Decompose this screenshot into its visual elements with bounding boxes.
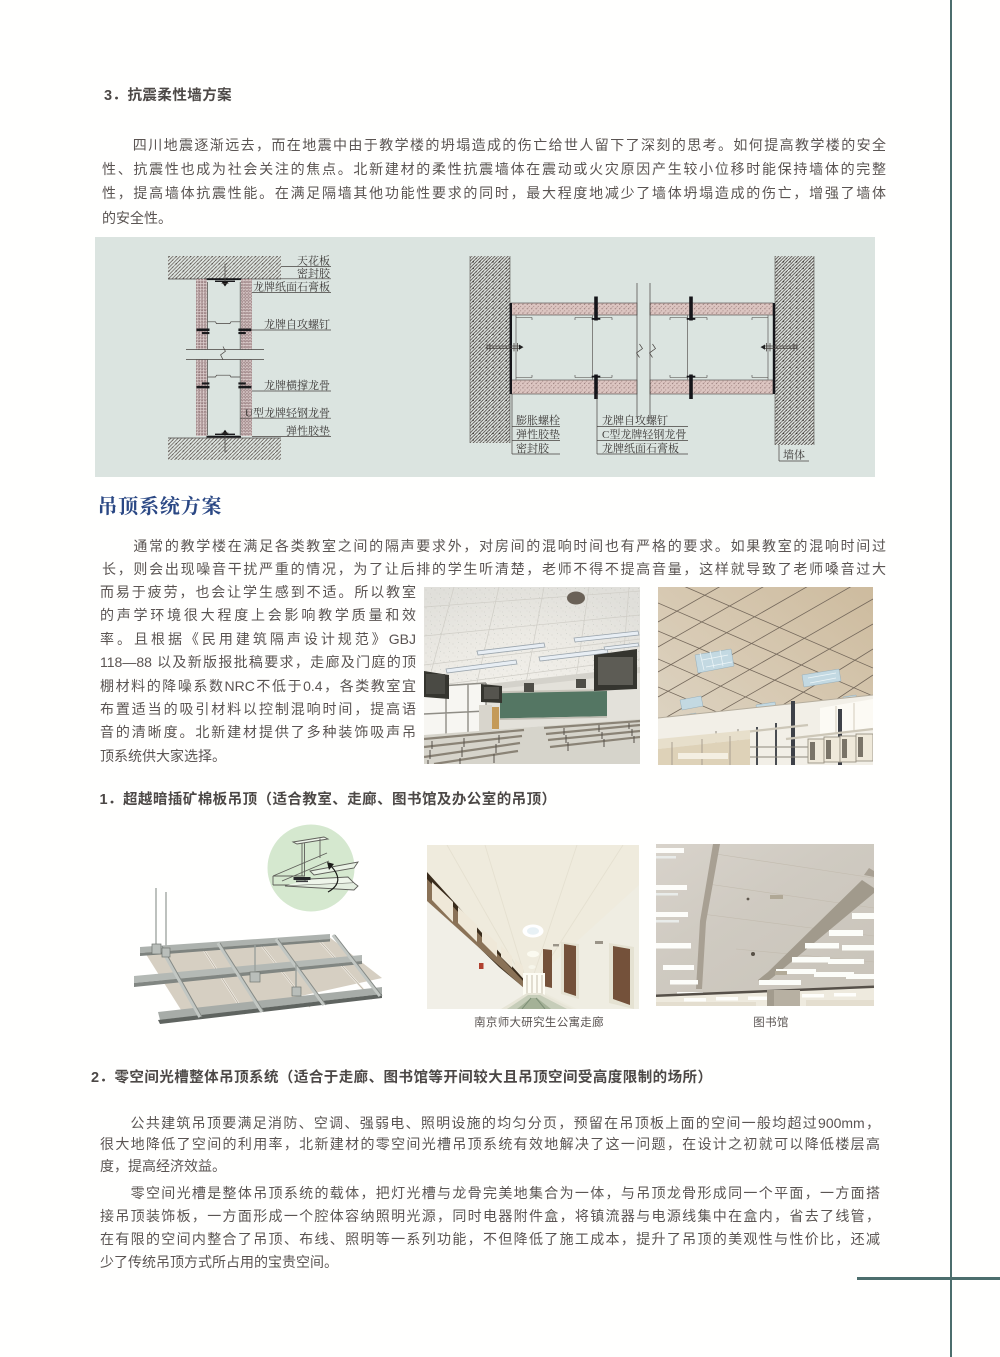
svg-text:C型龙牌轻钢龙骨: C型龙牌轻钢龙骨	[602, 427, 686, 441]
svg-text:密封胶: 密封胶	[516, 441, 550, 455]
svg-text:弹性胶垫: 弹性胶垫	[286, 424, 330, 438]
svg-text:密封胶: 密封胶	[297, 266, 331, 280]
svg-text:U型龙牌轻钢龙骨: U型龙牌轻钢龙骨	[245, 405, 330, 419]
svg-text:龙牌自攻螺钉: 龙牌自攻螺钉	[602, 413, 668, 427]
svg-text:膨胀螺栓: 膨胀螺栓	[516, 413, 560, 427]
svg-text:弹性胶垫: 弹性胶垫	[516, 427, 560, 441]
svg-text:龙牌纸面石膏板: 龙牌纸面石膏板	[602, 441, 679, 455]
svg-text:龙牌自攻螺钉: 龙牌自攻螺钉	[264, 317, 330, 331]
svg-text:天花板: 天花板	[297, 254, 330, 268]
svg-text:墙体: 墙体	[783, 448, 805, 462]
svg-text:龙牌横撑龙骨: 龙牌横撑龙骨	[264, 378, 330, 392]
svg-text:龙牌纸面石膏板: 龙牌纸面石膏板	[253, 280, 330, 294]
